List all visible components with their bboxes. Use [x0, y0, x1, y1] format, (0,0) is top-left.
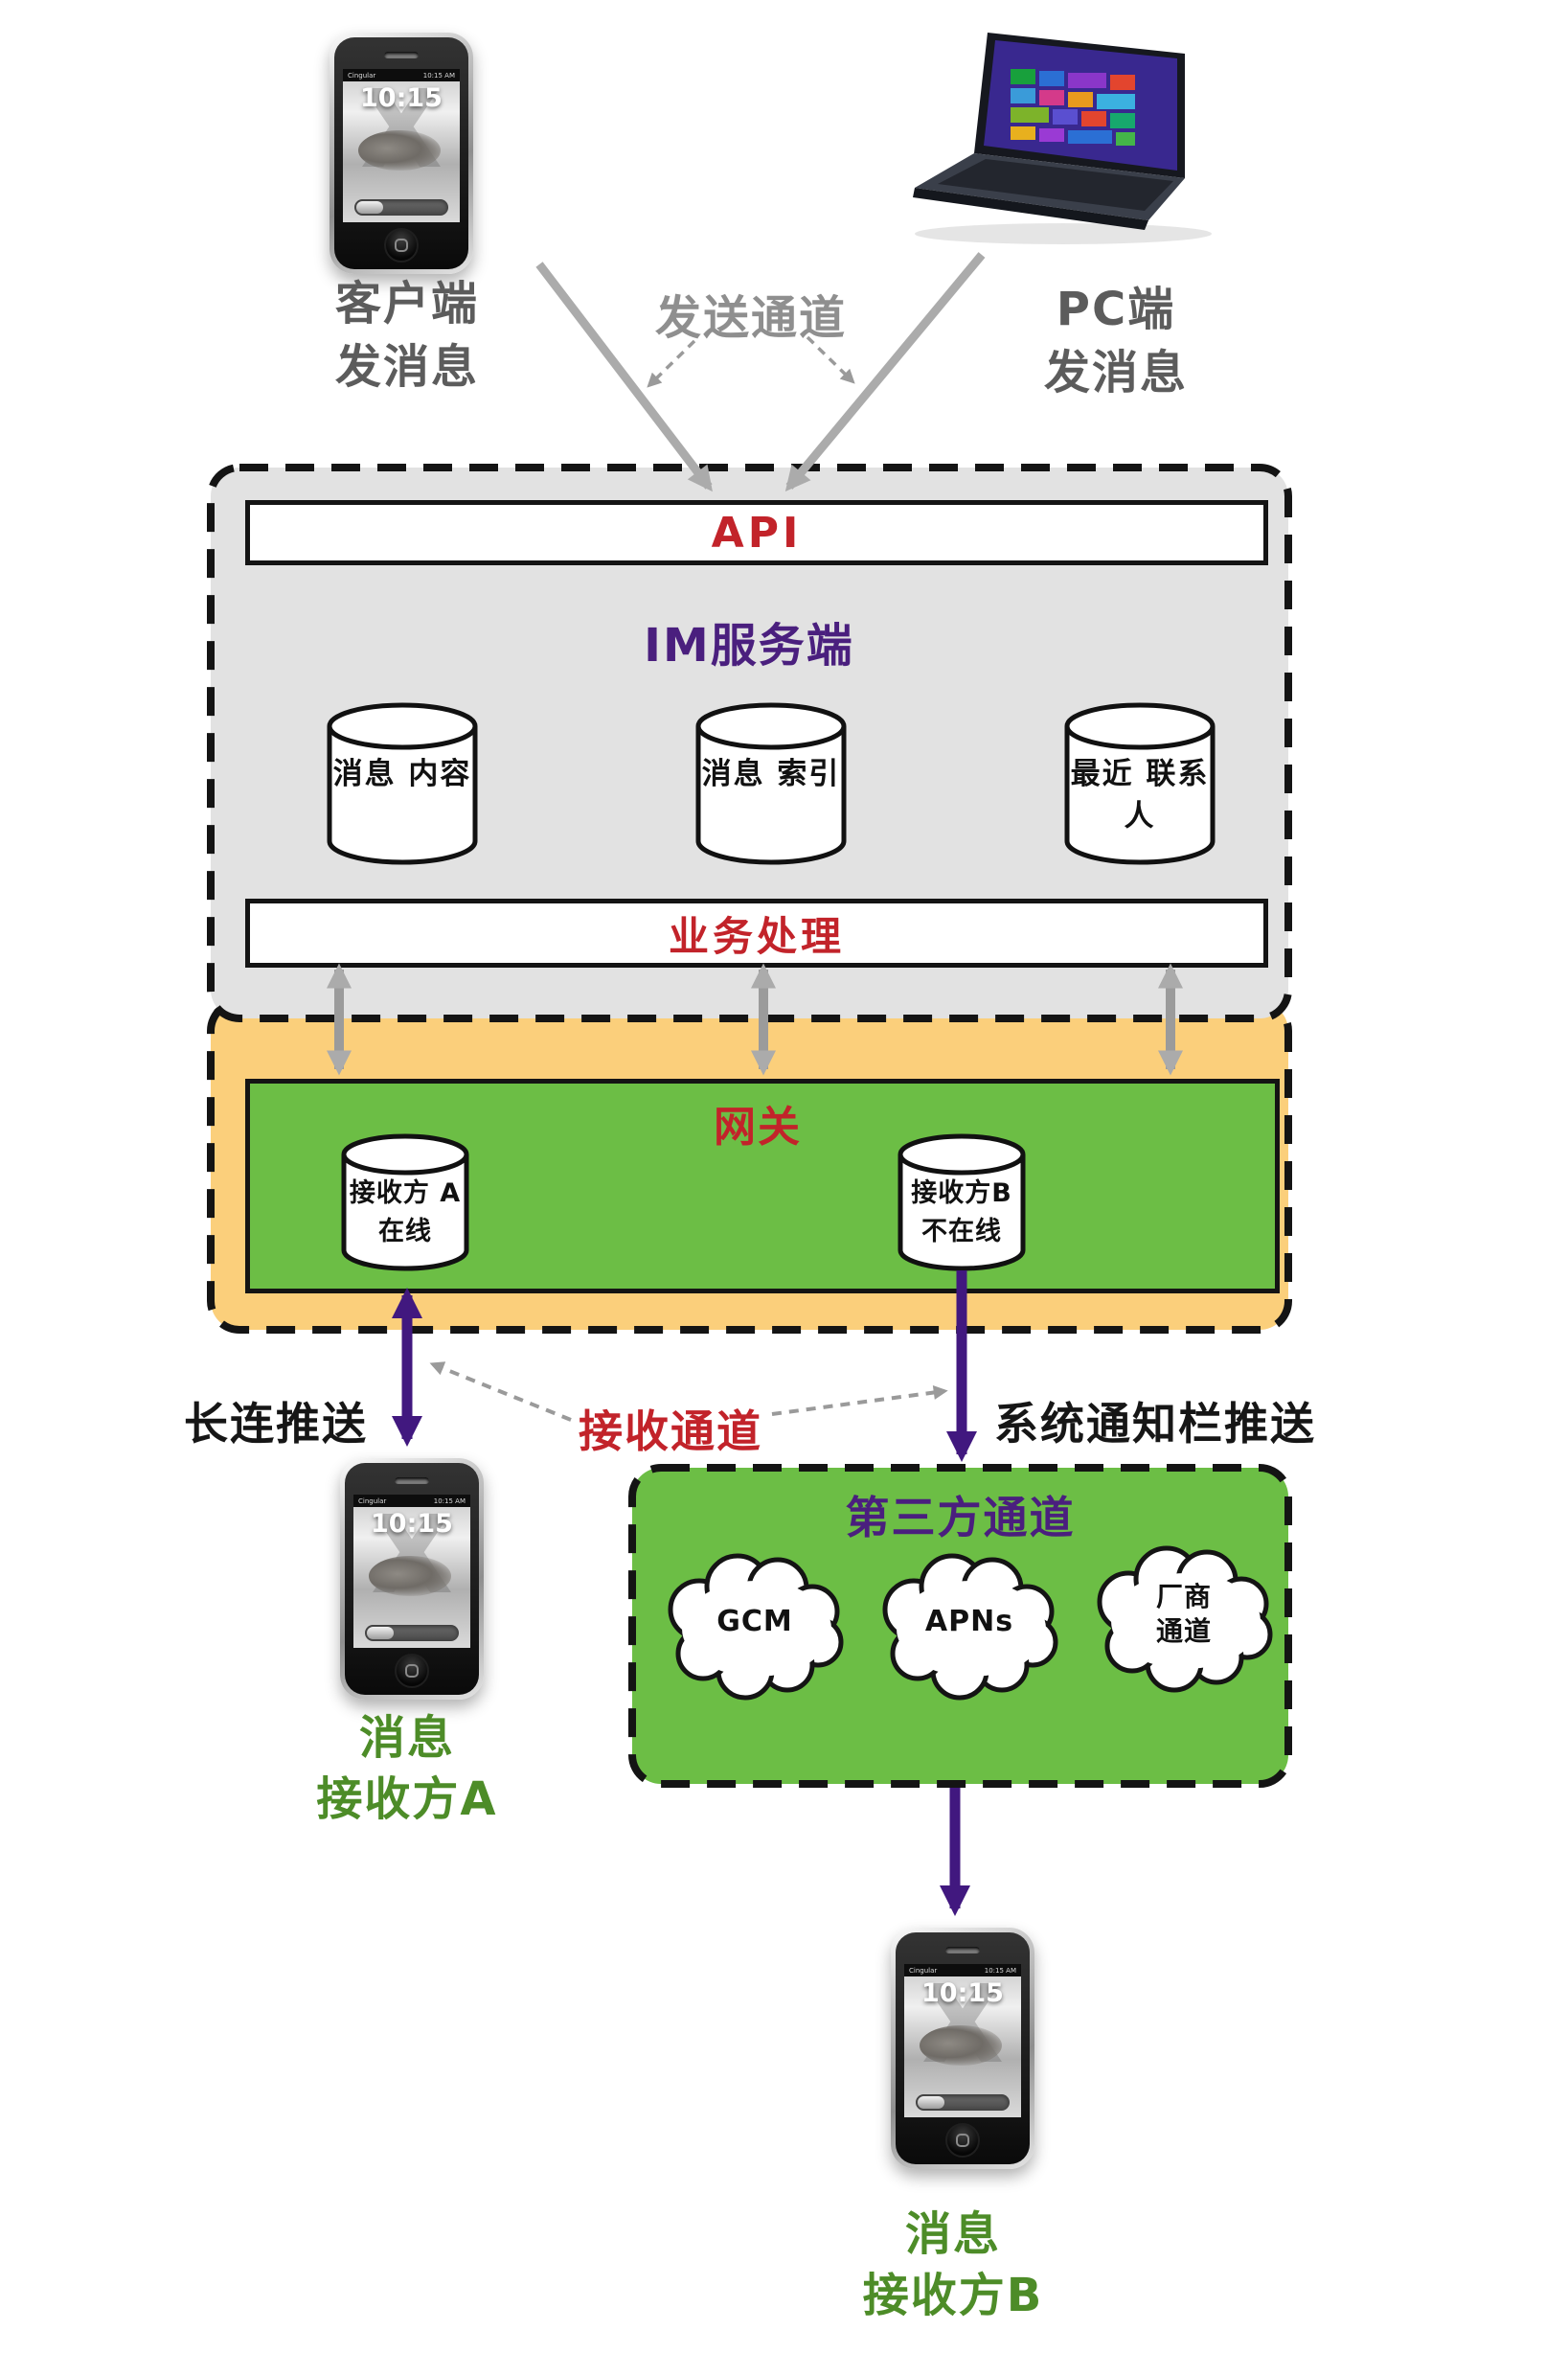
phone-bezel: Cingular 10:15 AM X 10:15 — [334, 37, 468, 269]
pc-sender-label: PC端 发消息 — [996, 278, 1236, 404]
business-logic-bar: 业务处理 — [245, 899, 1268, 968]
receiver-a-text-line1: 消息 — [259, 1707, 556, 1769]
receiver-a-phone-icon: Cingular 10:15 AM X 10:15 — [340, 1458, 484, 1700]
vendor-channel-cloud: 厂商 通道 — [1082, 1539, 1285, 1703]
store-cylinder-label: 最近 联系人 — [1059, 753, 1220, 837]
phone-lock-time: 10:15 — [904, 1978, 1021, 2008]
api-bar: API — [245, 500, 1268, 565]
phone-speaker-icon — [945, 1947, 980, 1953]
client-sender-label-line2: 发消息 — [287, 335, 527, 399]
gcm-label-text: GCM — [716, 1604, 793, 1640]
client-sender-label: 客户端 发消息 — [287, 272, 527, 399]
store-label-line2: 索引 — [777, 757, 840, 791]
phone-screen: Cingular 10:15 AM X 10:15 — [353, 1495, 470, 1648]
store-label-line2: 内容 — [408, 757, 471, 791]
gcm-cloud: GCM — [653, 1546, 856, 1711]
receiver-a-text-line2: 接收方A — [259, 1769, 556, 1830]
api-bar-label: API — [712, 509, 803, 558]
store-label-line2: 联系人 — [1125, 757, 1210, 834]
client-phone-icon: Cingular 10:15 AM X 10:15 — [330, 33, 473, 274]
receiver-b-offline-cylinder: 接收方B 不在线 — [894, 1132, 1030, 1274]
phone-speaker-icon — [384, 52, 419, 58]
send-channel-label: 发送通道 — [607, 280, 895, 347]
store-cylinder-label: 消息 索引 — [691, 753, 852, 795]
im-server-title: IM服务端 — [366, 607, 1132, 674]
send-channel-pointer-left-arrow — [649, 341, 694, 385]
slider-knob — [356, 201, 383, 214]
third-party-channel-title: 第三方通道 — [632, 1483, 1288, 1546]
store-cylinder-label: 消息 内容 — [322, 753, 483, 795]
message-index-store-cylinder: 消息 索引 — [691, 701, 852, 868]
receiver-b-label-line1: 接收方B — [911, 1178, 1012, 1208]
home-button-icon — [395, 1654, 429, 1688]
vendor-channel-cloud-label: 厂商 通道 — [1082, 1539, 1285, 1690]
phone-bezel: Cingular 10:15 AM X 10:15 — [345, 1463, 479, 1695]
receive-channel-label: 接收通道 — [527, 1397, 814, 1460]
store-label-line1: 最近 — [1071, 757, 1134, 791]
store-label-line1: 消息 — [702, 757, 765, 791]
gcm-cloud-label: GCM — [653, 1546, 856, 1698]
store-label-line1: 消息 — [333, 757, 397, 791]
apns-label-text: APNs — [925, 1604, 1013, 1640]
apns-cloud-label: APNs — [868, 1546, 1071, 1698]
slider-knob — [918, 2096, 944, 2109]
leopard-wallpaper-icon — [358, 130, 441, 171]
phone-lock-time: 10:15 — [353, 1509, 470, 1539]
receiver-a-label-line1: 接收方 — [350, 1178, 430, 1208]
client-sender-label-line1: 客户端 — [287, 272, 527, 335]
message-receiver-a-label: 消息 接收方A — [259, 1707, 556, 1830]
home-button-icon — [384, 228, 419, 263]
long-connection-push-label: 长连推送 — [142, 1389, 410, 1452]
receiver-a-cylinder-label: 接收方 A在线 — [337, 1175, 473, 1251]
receiver-b-label-line2: 不在线 — [921, 1217, 1002, 1246]
phone-screen: Cingular 10:15 AM X 10:15 — [904, 1964, 1021, 2117]
unlock-slider — [354, 199, 448, 216]
pc-laptop-icon — [896, 27, 1245, 256]
pc-sender-label-line2: 发消息 — [996, 341, 1236, 404]
message-receiver-b-label: 消息 接收方B — [795, 2204, 1111, 2326]
business-logic-label: 业务处理 — [669, 904, 845, 963]
receiver-b-text-line1: 消息 — [795, 2204, 1111, 2265]
phone-speaker-icon — [395, 1477, 429, 1484]
receiver-a-online-cylinder: 接收方 A在线 — [337, 1132, 473, 1274]
vendor-label-line2: 通道 — [1156, 1614, 1212, 1649]
windows-tiles-icon — [1011, 69, 1135, 146]
phone-lock-time: 10:15 — [343, 83, 460, 113]
unlock-slider — [365, 1625, 459, 1641]
leopard-wallpaper-icon — [920, 2025, 1002, 2066]
phone-screen: Cingular 10:15 AM X 10:15 — [343, 69, 460, 222]
home-button-icon — [945, 2123, 980, 2158]
leopard-wallpaper-icon — [369, 1556, 451, 1596]
receiver-b-phone-icon: Cingular 10:15 AM X 10:15 — [891, 1928, 1034, 2169]
pc-sender-label-line1: PC端 — [996, 278, 1236, 341]
message-content-store-cylinder: 消息 内容 — [322, 701, 483, 868]
im-architecture-diagram: Cingular 10:15 AM X 10:15 客户端 发消息 发送通道 — [0, 0, 1568, 2353]
recent-contacts-store-cylinder: 最近 联系人 — [1059, 701, 1220, 868]
system-notification-push-label: 系统通知栏推送 — [964, 1389, 1347, 1452]
unlock-slider — [916, 2094, 1010, 2111]
receiver-b-cylinder-label: 接收方B 不在线 — [894, 1175, 1030, 1251]
phone-bezel: Cingular 10:15 AM X 10:15 — [896, 1932, 1030, 2164]
slider-knob — [367, 1627, 394, 1639]
apns-cloud: APNs — [868, 1546, 1071, 1711]
vendor-label-line1: 厂商 — [1156, 1580, 1212, 1614]
receiver-b-text-line2: 接收方B — [795, 2265, 1111, 2326]
